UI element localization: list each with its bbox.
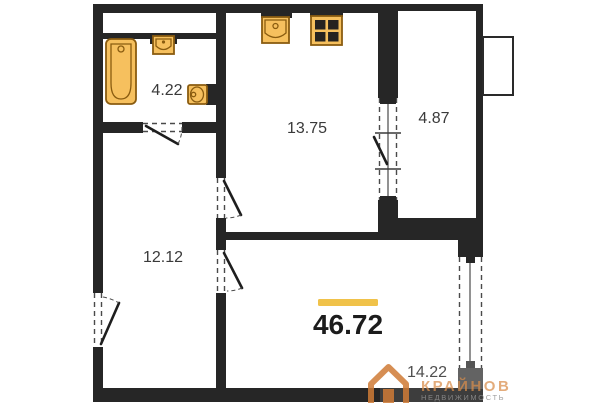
door-swing-arc (103, 297, 119, 303)
room-window (460, 257, 482, 368)
walls (93, 4, 483, 402)
bathroom-door (143, 124, 182, 145)
balcony-door-leaf (374, 137, 387, 164)
exterior-ledge (483, 37, 513, 95)
bathtub-icon (106, 39, 136, 104)
door-swing-arc (178, 127, 182, 144)
door-swing-arc (226, 215, 241, 218)
room-label-bathroom: 4.22 (151, 82, 182, 99)
house-door (383, 389, 394, 403)
door-leaf (146, 126, 178, 144)
door-leaf (101, 303, 119, 344)
window-cap (466, 257, 475, 263)
door-leaf (224, 253, 242, 288)
wall-bottom-left (93, 388, 380, 402)
sink-drain (162, 40, 165, 43)
kitchen-sink-icon (261, 13, 292, 43)
kitchen-door (218, 178, 242, 218)
brand-subtitle: НЕДВИЖИМОСТЬ (421, 393, 505, 402)
wall-balcony-right (476, 10, 483, 220)
wall-bathroom-bottom-left (93, 122, 143, 133)
wall-balcony-top (398, 4, 483, 11)
room-label-balcony: 4.87 (418, 110, 449, 127)
total-area-label: 46.72 (313, 309, 383, 340)
door-leaf (224, 181, 241, 215)
entrance-door (95, 293, 120, 347)
wall-left-upper (93, 4, 103, 293)
wall-top (93, 4, 398, 13)
bathroom-sink-icon (150, 33, 177, 54)
room-door (218, 250, 243, 293)
floorplan-svg: 4.22 13.75 4.87 12.12 14.22 46.72 КРАЙНО… (0, 0, 605, 403)
wall-right-step (458, 240, 483, 257)
balcony-door-window (374, 98, 401, 202)
floorplan-canvas: 4.22 13.75 4.87 12.12 14.22 46.72 КРАЙНО… (0, 0, 605, 403)
wall-kitchen-room (216, 232, 398, 240)
wall-interior-lower (216, 293, 226, 402)
door-swing-arc (227, 288, 242, 291)
wall-bathroom-bottom-right (182, 122, 226, 133)
window-cap (380, 196, 396, 202)
total-area-accent-bar (318, 299, 378, 306)
sink-body (262, 17, 289, 43)
room-label-kitchen: 13.75 (287, 120, 327, 137)
window-cap (380, 98, 396, 104)
stove-icon (310, 12, 343, 45)
room-label-hallway: 12.12 (143, 249, 183, 266)
window-cap (466, 361, 475, 368)
wall-kitchen-balcony-upper (378, 4, 398, 98)
toilet-icon (188, 84, 218, 105)
